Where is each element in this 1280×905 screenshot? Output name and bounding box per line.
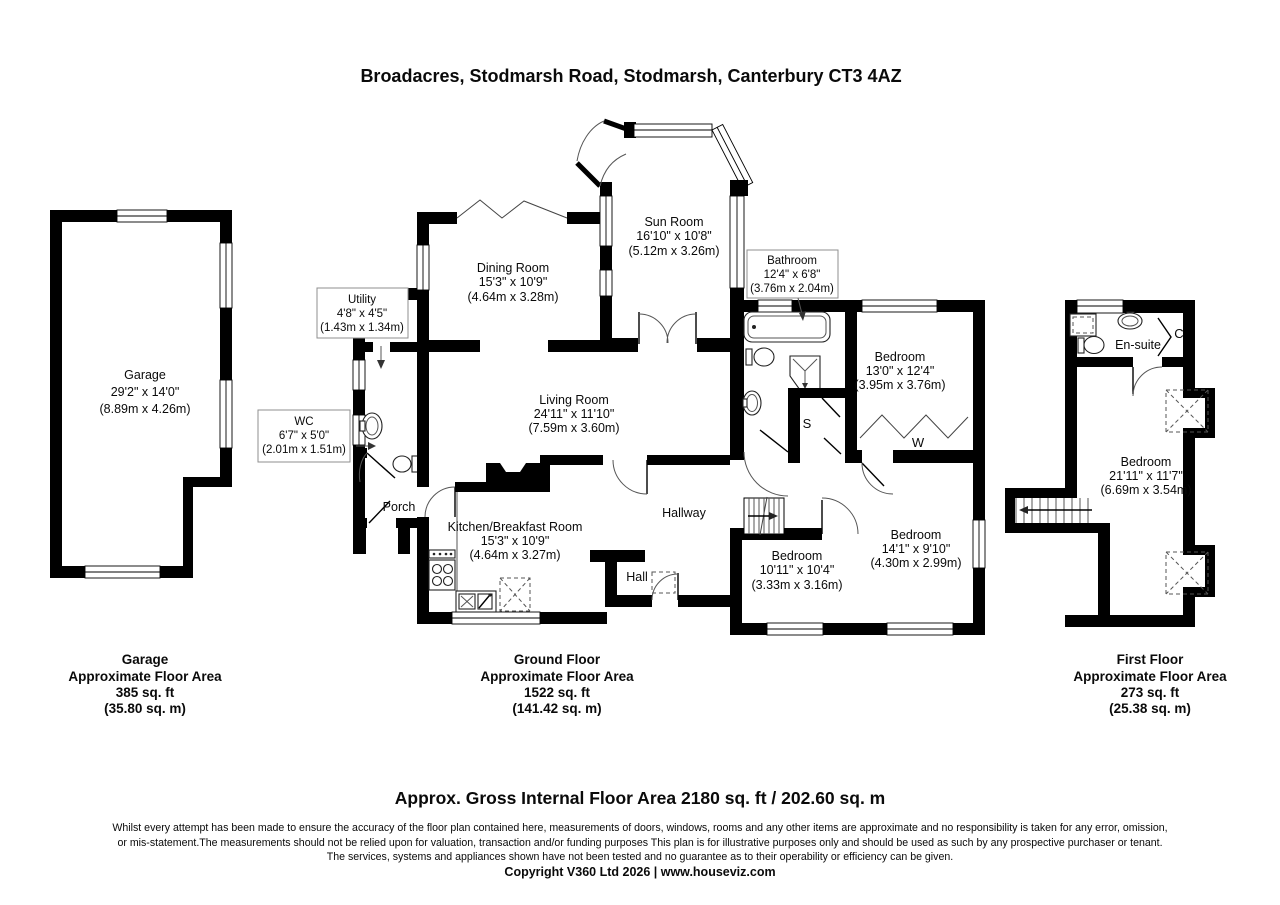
ground-summary-subtitle: Approximate Floor Area: [480, 669, 634, 684]
disclaimer-line-1: Whilst every attempt has been made to en…: [112, 822, 1167, 834]
ground-summary-area-m: (141.42 sq. m): [512, 701, 601, 716]
bedroom3-name: Bedroom: [891, 528, 942, 542]
living-hallway-door: [613, 460, 647, 494]
ensuite-door: [1133, 367, 1162, 396]
bedroom2-door: [822, 498, 858, 534]
ensuite-shower-symbol: [1070, 314, 1096, 336]
utility-dims-ft: 4'8" x 4'5": [337, 308, 387, 320]
garage-room-dims-m: (8.89m x 4.26m): [99, 402, 190, 416]
ensuite-sink-symbol: [1118, 312, 1142, 329]
bedroom2-window-bottom: [767, 623, 823, 635]
garage-window-right-2: [220, 380, 232, 448]
bath-symbol: [744, 312, 830, 342]
cupboard-label: C: [1174, 326, 1183, 341]
wc-dims-m: (2.01m x 1.51m): [262, 444, 346, 456]
hall-room-name: Hall: [626, 570, 648, 584]
garage-summary-subtitle: Approximate Floor Area: [68, 669, 222, 684]
ground-summary-area-ft: 1522 sq. ft: [524, 685, 591, 700]
living-room-name: Living Room: [539, 393, 608, 407]
wc-dims-ft: 6'7" x 5'0": [279, 430, 329, 442]
ensuite-window: [1077, 300, 1123, 313]
bedroom2-dims-m: (3.33m x 3.16m): [751, 578, 842, 592]
garage-summary-floor: Garage: [122, 652, 169, 667]
porch-room-name: Porch: [383, 500, 416, 514]
bathroom-name: Bathroom: [767, 255, 817, 267]
utility-entry-arrow: [377, 346, 385, 369]
bedroom3-dims-m: (4.30m x 2.99m): [870, 556, 961, 570]
kitchen-room-dims-m: (4.64m x 3.27m): [469, 548, 560, 562]
bedroom1-name: Bedroom: [875, 350, 926, 364]
ensuite-name: En-suite: [1115, 338, 1161, 352]
store-label: S: [803, 416, 812, 431]
dining-room-name: Dining Room: [477, 261, 549, 275]
store-bifold-doors: [822, 398, 841, 454]
first-summary-subtitle: Approximate Floor Area: [1073, 669, 1227, 684]
wc-name: WC: [294, 416, 313, 428]
shower-symbol: [790, 356, 820, 390]
bathroom-door: [744, 430, 788, 496]
ground-summary: Ground Floor Approximate Floor Area 1522…: [480, 652, 634, 716]
first-bedroom-dims-m: (6.69m x 3.54m): [1100, 483, 1191, 497]
bathroom-window: [758, 300, 792, 312]
front-door: [652, 572, 678, 600]
first-bedroom-name: Bedroom: [1121, 455, 1172, 469]
utility-label-box: Utility 4'8" x 4'5" (1.43m x 1.34m): [317, 288, 408, 338]
porch-kitchen-door: [425, 487, 455, 517]
copyright-line: Copyright V360 Ltd 2026 | www.houseviz.c…: [504, 865, 775, 879]
first-summary-area-m: (25.38 sq. m): [1109, 701, 1191, 716]
first-summary-floor: First Floor: [1117, 652, 1184, 667]
kitchen-room-dims-ft: 15'3" x 10'9": [481, 534, 550, 548]
bathroom-toilet-symbol: [746, 348, 774, 366]
garage-summary-area-m: (35.80 sq. m): [104, 701, 186, 716]
sun-room-dims-ft: 16'10" x 10'8": [636, 229, 712, 243]
dining-opening-zigzag: [457, 200, 567, 218]
wc-toilet-symbol: [393, 456, 418, 472]
bedroom3-dims-ft: 14'1" x 9'10": [882, 542, 951, 556]
garage-window-bottom: [85, 566, 160, 578]
sunroom-window-left-2: [600, 270, 612, 296]
kitchen-sink-symbol: [456, 591, 496, 612]
garage-summary: Garage Approximate Floor Area 385 sq. ft…: [68, 652, 222, 716]
kitchen-island-dashed: [500, 578, 530, 611]
utility-name: Utility: [348, 294, 376, 306]
bathroom-sink-symbol: [743, 391, 761, 415]
bedroom3-window-right: [973, 520, 985, 568]
staircase-ground: [744, 497, 784, 535]
bedroom1-window: [862, 300, 937, 312]
garage-window-top: [117, 210, 167, 222]
floorplan-canvas: Broadacres, Stodmarsh Road, Stodmarsh, C…: [0, 0, 1280, 905]
sunroom-window-left-1: [600, 196, 612, 246]
garage-room-dims-ft: 29'2" x 14'0": [111, 385, 180, 399]
first-bedroom-dims-ft: 21'11" x 11'7": [1109, 469, 1183, 483]
bedroom1-dims-m: (3.95m x 3.76m): [854, 378, 945, 392]
first-floor-plan: En-suite C Bedroom 21'11" x 11'7" (6.69m…: [1005, 300, 1215, 627]
bedroom2-name: Bedroom: [772, 549, 823, 563]
utility-window: [353, 360, 365, 390]
living-room-dims-ft: 24'11" x 11'10": [534, 407, 615, 421]
living-room-dims-m: (7.59m x 3.60m): [528, 421, 619, 435]
fireplace-symbol: [486, 463, 540, 485]
wc-label-box: WC 6'7" x 5'0" (2.01m x 1.51m): [258, 410, 350, 462]
sun-room-dims-m: (5.12m x 3.26m): [628, 244, 719, 258]
staircase-first: [1016, 498, 1092, 523]
stove-symbol: [429, 550, 455, 590]
sunroom-window-right: [730, 196, 744, 288]
sunroom-window-top: [634, 124, 712, 137]
dining-window-left: [417, 245, 429, 290]
sunroom-window-angled: [712, 125, 753, 189]
utility-dims-m: (1.43m x 1.34m): [320, 322, 404, 334]
first-summary-area-ft: 273 sq. ft: [1121, 685, 1180, 700]
floorplan-page: Broadacres, Stodmarsh Road, Stodmarsh, C…: [0, 0, 1280, 905]
kitchen-window-bottom: [452, 612, 540, 624]
gross-area-line: Approx. Gross Internal Floor Area 2180 s…: [395, 788, 886, 808]
bedroom3-window-bottom: [887, 623, 953, 635]
bathroom-dims-ft: 12'4" x 6'8": [764, 269, 821, 281]
footer: Approx. Gross Internal Floor Area 2180 s…: [112, 788, 1167, 879]
bedroom1-dims-ft: 13'0" x 12'4": [866, 364, 935, 378]
garage-window-right-1: [220, 243, 232, 308]
hallway-room-name: Hallway: [662, 506, 707, 520]
bedroom2-dims-ft: 10'11" x 10'4": [760, 563, 835, 577]
garage-summary-area-ft: 385 sq. ft: [116, 685, 175, 700]
bathroom-dims-m: (3.76m x 2.04m): [750, 283, 834, 295]
sun-room-name: Sun Room: [644, 215, 703, 229]
sunroom-entrance-doors: [577, 121, 632, 186]
ground-floor-plan: Porch: [258, 121, 985, 635]
garage-plan: Garage 29'2" x 14'0" (8.89m x 4.26m): [50, 210, 232, 578]
bedroom3-door: [862, 463, 893, 494]
dining-room-dims-ft: 15'3" x 10'9": [479, 275, 548, 289]
disclaimer-line-3: The services, systems and appliances sho…: [327, 851, 953, 863]
sunroom-french-doors: [639, 312, 696, 344]
dining-room-dims-m: (4.64m x 3.28m): [467, 290, 558, 304]
garage-room-name: Garage: [124, 368, 166, 382]
kitchen-room-name: Kitchen/Breakfast Room: [448, 520, 583, 534]
disclaimer-line-2: or mis-statement.The measurements should…: [117, 837, 1162, 849]
wardrobe-label: W: [912, 435, 925, 450]
ensuite-toilet-symbol: [1078, 337, 1104, 354]
property-title: Broadacres, Stodmarsh Road, Stodmarsh, C…: [360, 66, 901, 86]
first-summary: First Floor Approximate Floor Area 273 s…: [1073, 652, 1227, 716]
ground-summary-floor: Ground Floor: [514, 652, 601, 667]
